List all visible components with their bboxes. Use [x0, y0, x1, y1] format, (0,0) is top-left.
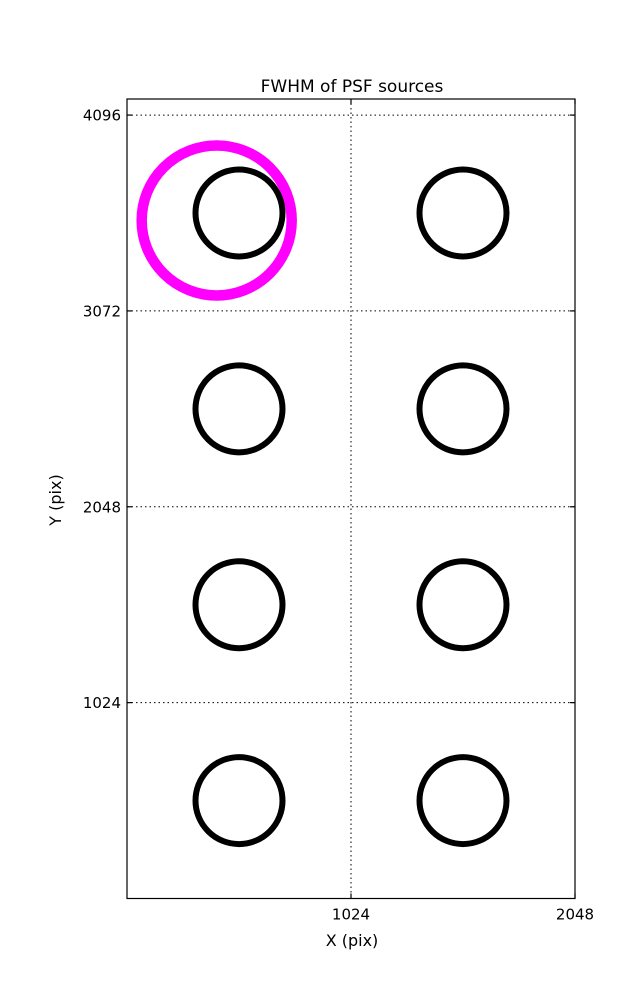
x-tick-label-2048: 2048: [556, 906, 594, 924]
y-axis-label: Y (pix): [46, 474, 65, 526]
chart-title: FWHM of PSF sources: [261, 77, 444, 97]
y-tick-label-4096: 4096: [83, 107, 121, 125]
fwhm-psf-chart: 102420483072409610242048 FWHM of PSF sou…: [0, 0, 637, 1000]
figure: 102420483072409610242048 FWHM of PSF sou…: [0, 0, 637, 1000]
y-tick-label-1024: 1024: [83, 694, 121, 712]
y-tick-label-2048: 2048: [83, 498, 121, 516]
x-tick-label-1024: 1024: [332, 906, 370, 924]
x-axis-label: X (pix): [326, 931, 379, 950]
y-tick-label-3072: 3072: [83, 302, 121, 320]
